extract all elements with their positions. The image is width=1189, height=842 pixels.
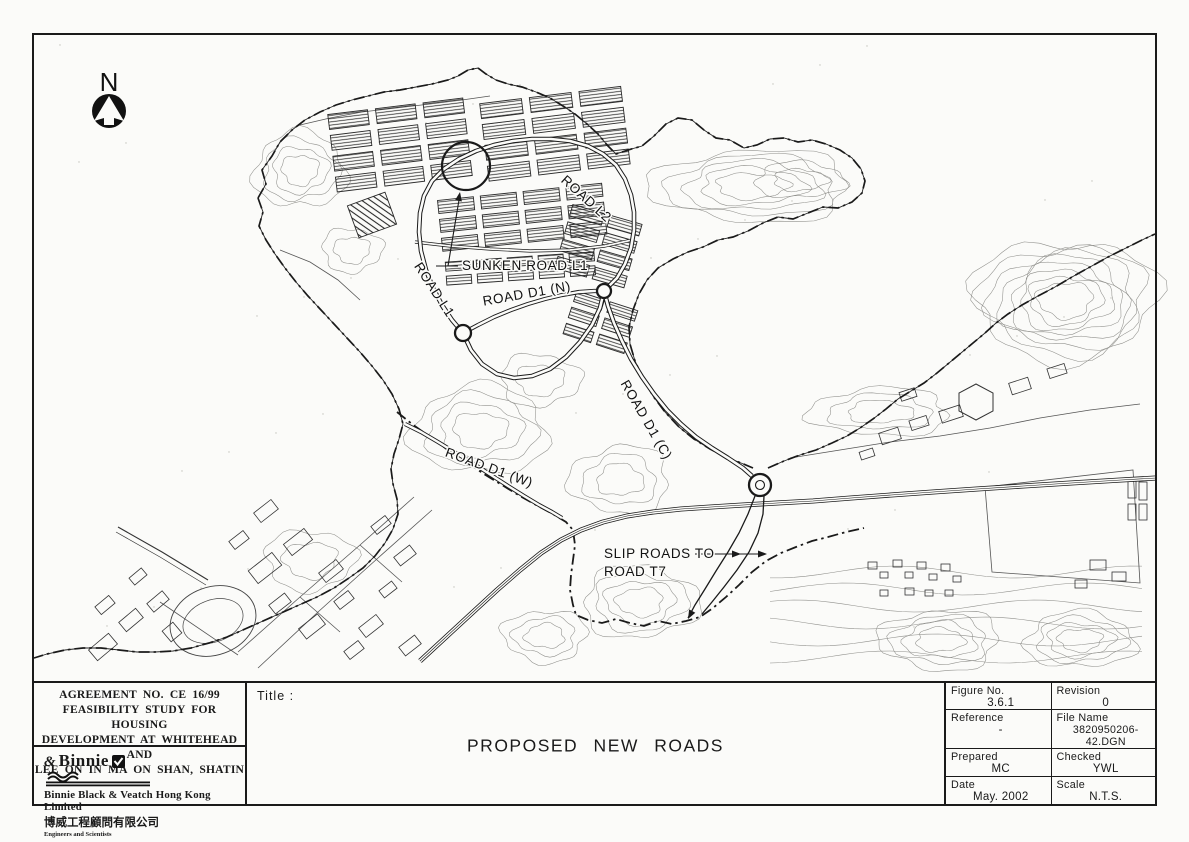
drawing-title: PROPOSED NEW ROADS — [467, 735, 724, 756]
logo-ampersand: & — [44, 754, 56, 771]
drawing-sheet: N SUNKEN ROAD L1 ROAD L1 ROAD L2 ROAD D1… — [0, 0, 1189, 842]
field-label: Prepared — [951, 751, 1051, 763]
field-prepared: Prepared MC — [946, 749, 1051, 776]
company-name-en: Binnie Black & Veatch Hong Kong Limited — [44, 789, 237, 813]
field-value: N.T.S. — [1057, 791, 1156, 803]
title-label: Title : — [257, 689, 294, 703]
field-label: Date — [951, 779, 1051, 791]
field-label: Reference — [951, 712, 1051, 724]
title-block-fields: Figure No. 3.6.1 Revision 0 Reference - … — [946, 683, 1155, 804]
field-scale: Scale N.T.S. — [1051, 777, 1156, 804]
field-value: 3.6.1 — [951, 697, 1051, 709]
agreement-line: FEASIBILITY STUDY FOR HOUSING — [34, 702, 245, 732]
field-date: Date May. 2002 — [946, 777, 1051, 804]
field-file-name: File Name 3820950206-42.DGN — [1051, 710, 1156, 749]
field-label: File Name — [1057, 712, 1156, 724]
field-value: YWL — [1057, 763, 1156, 775]
field-value: May. 2002 — [951, 791, 1051, 803]
field-label: Figure No. — [951, 685, 1051, 697]
company-logo-area: & Binnie Binnie Black & Veatch Hong Kong… — [34, 747, 245, 840]
field-value: - — [951, 724, 1051, 736]
logo-waves-icon — [46, 771, 150, 788]
logo-name: Binnie — [59, 751, 109, 771]
agreement-line: AGREEMENT NO. CE 16/99 — [34, 687, 245, 702]
title-block: AGREEMENT NO. CE 16/99 FEASIBILITY STUDY… — [32, 681, 1157, 806]
bv-logo-icon — [112, 755, 125, 768]
title-block-left: AGREEMENT NO. CE 16/99 FEASIBILITY STUDY… — [34, 683, 247, 804]
field-checked: Checked YWL — [1051, 749, 1156, 776]
title-cell: Title : PROPOSED NEW ROADS — [247, 683, 946, 804]
field-reference: Reference - — [946, 710, 1051, 749]
field-value: 0 — [1057, 697, 1156, 709]
field-label: Checked — [1057, 751, 1156, 763]
field-revision: Revision 0 — [1051, 683, 1156, 710]
field-figure-no: Figure No. 3.6.1 — [946, 683, 1051, 710]
field-value: 3820950206-42.DGN — [1057, 724, 1156, 748]
binnie-logo: & Binnie — [44, 751, 237, 771]
agreement-text: AGREEMENT NO. CE 16/99 FEASIBILITY STUDY… — [34, 683, 245, 747]
company-name-zh: 博威工程顧問有限公司 — [44, 814, 237, 830]
company-tagline: Engineers and Scientists — [44, 831, 237, 838]
field-label: Revision — [1057, 685, 1156, 697]
field-value: MC — [951, 763, 1051, 775]
field-label: Scale — [1057, 779, 1156, 791]
